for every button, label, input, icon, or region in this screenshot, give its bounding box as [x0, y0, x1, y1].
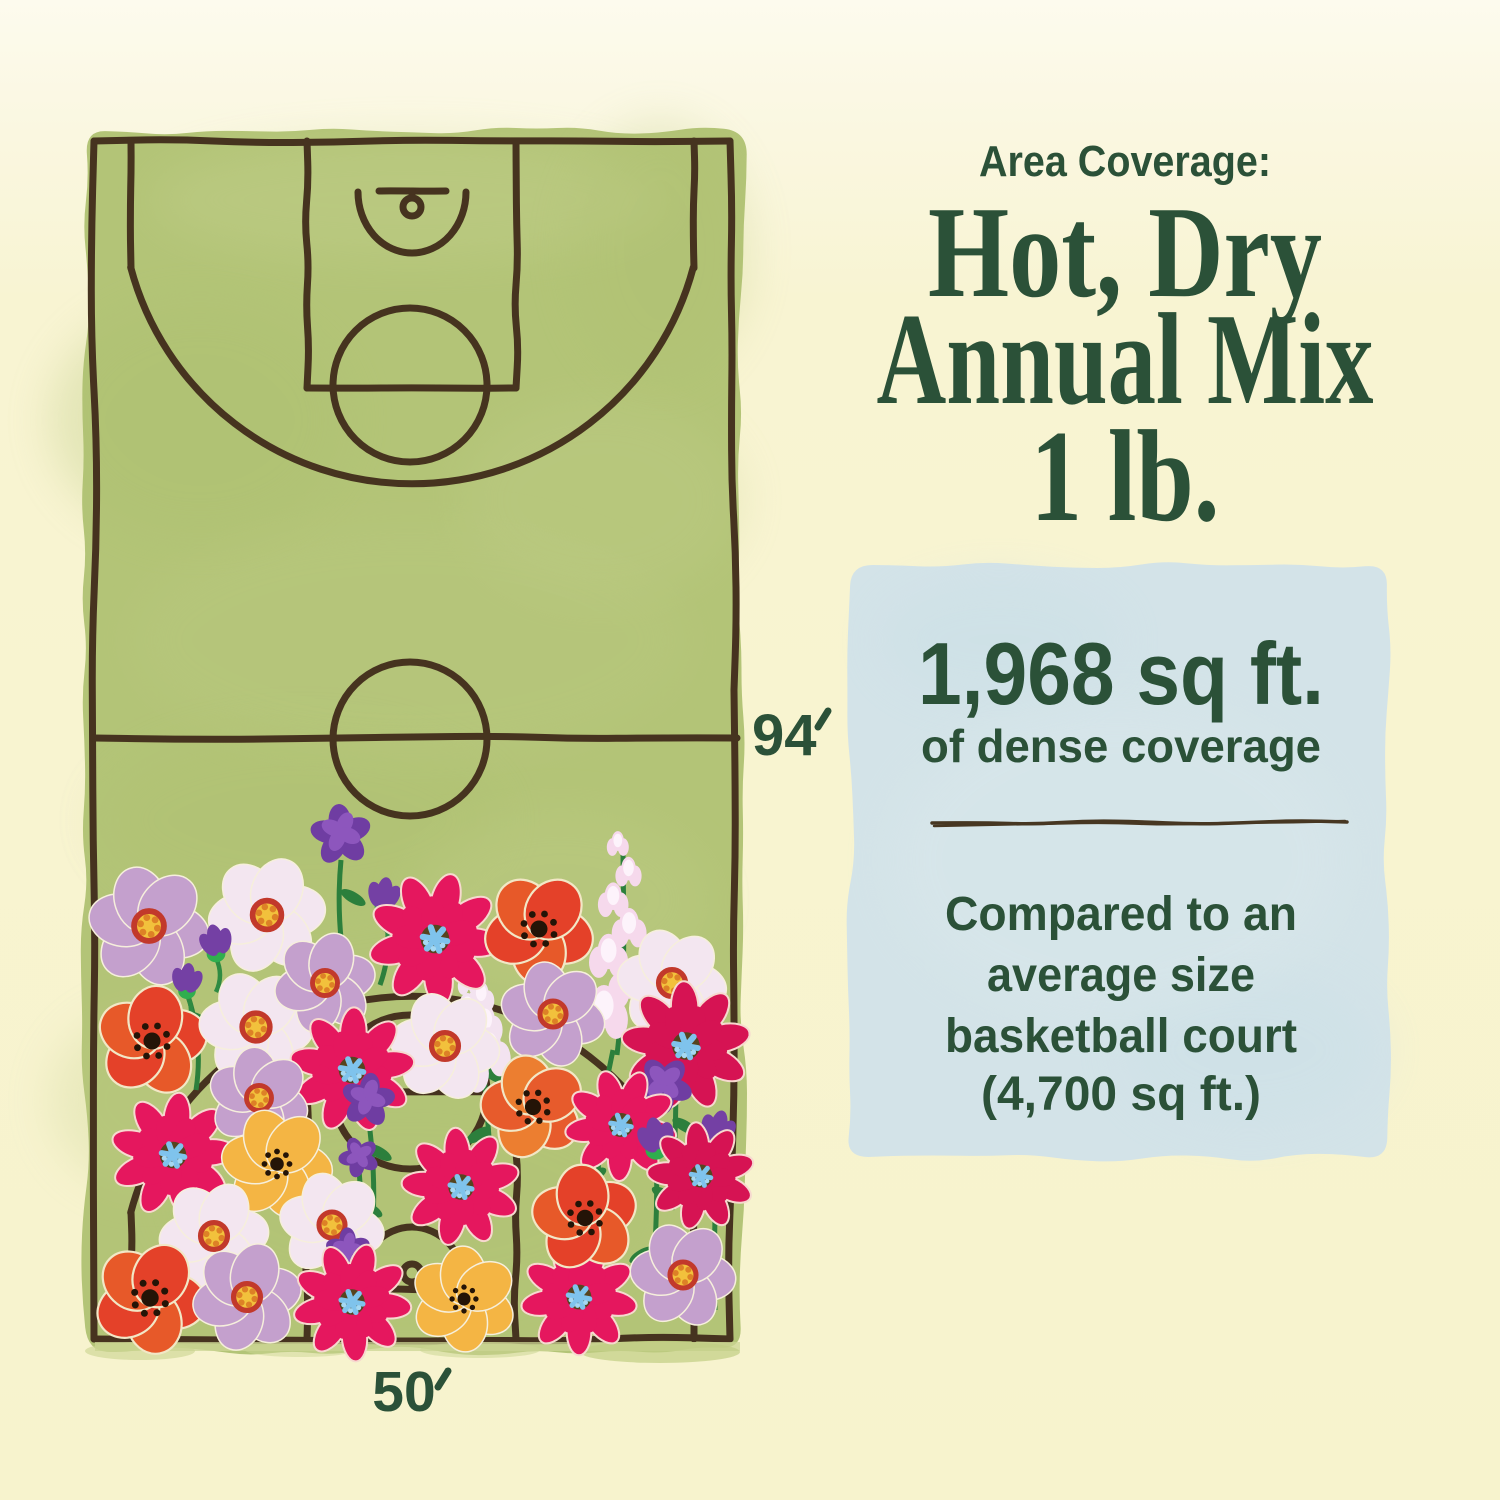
svg-text:(4,700 sq ft.): (4,700 sq ft.) — [981, 1068, 1261, 1121]
svg-text:1,968 sq ft.: 1,968 sq ft. — [918, 624, 1324, 723]
svg-text:50: 50 — [372, 1360, 435, 1424]
svg-text:average size: average size — [987, 949, 1255, 1002]
svg-text:1 lb.: 1 lb. — [1031, 404, 1220, 549]
svg-text:of dense coverage: of dense coverage — [921, 720, 1321, 772]
svg-text:Compared to an: Compared to an — [945, 888, 1297, 941]
svg-text:Area Coverage:: Area Coverage: — [979, 137, 1271, 186]
svg-text:basketball court: basketball court — [945, 1010, 1297, 1063]
svg-text:94: 94 — [752, 703, 817, 768]
